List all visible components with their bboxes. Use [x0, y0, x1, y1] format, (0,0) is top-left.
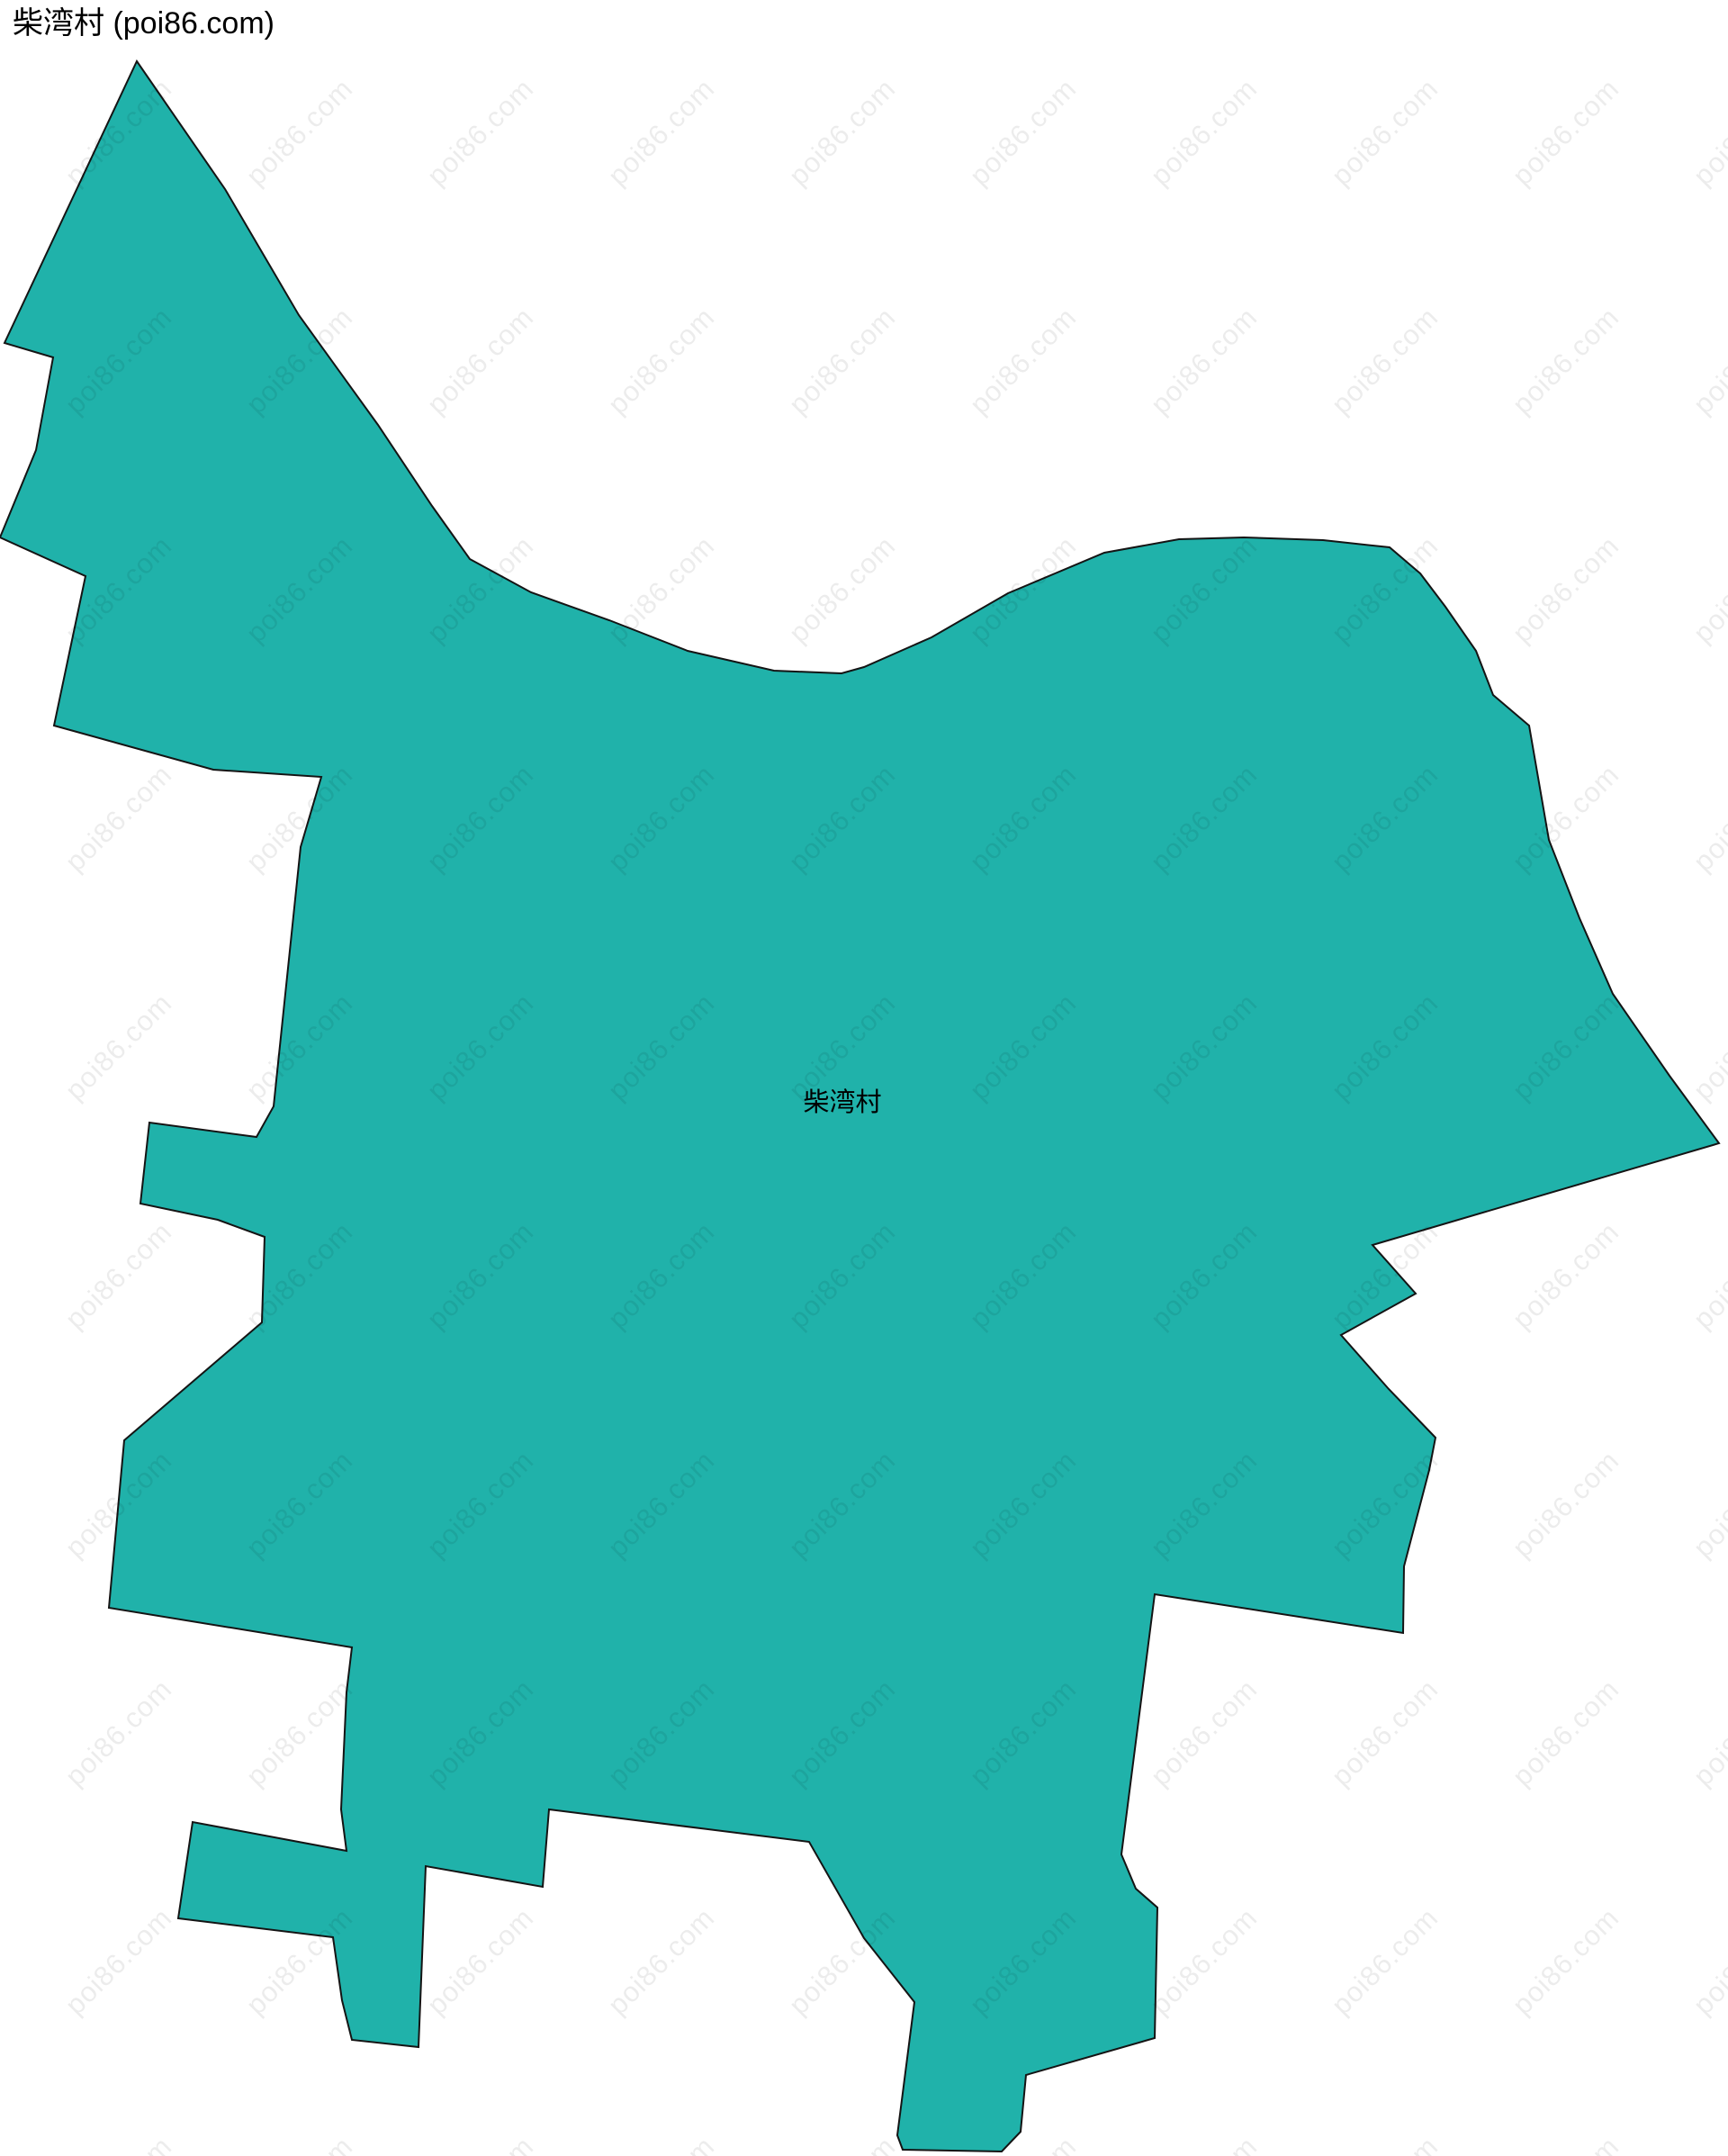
region-label: 柴湾村: [803, 1081, 881, 1119]
map-canvas: poi86.compoi86.compoi86.compoi86.compoi8…: [0, 0, 1728, 2156]
page-title: 柴湾村 (poi86.com): [13, 5, 274, 42]
boundary-map: [0, 0, 1728, 2156]
